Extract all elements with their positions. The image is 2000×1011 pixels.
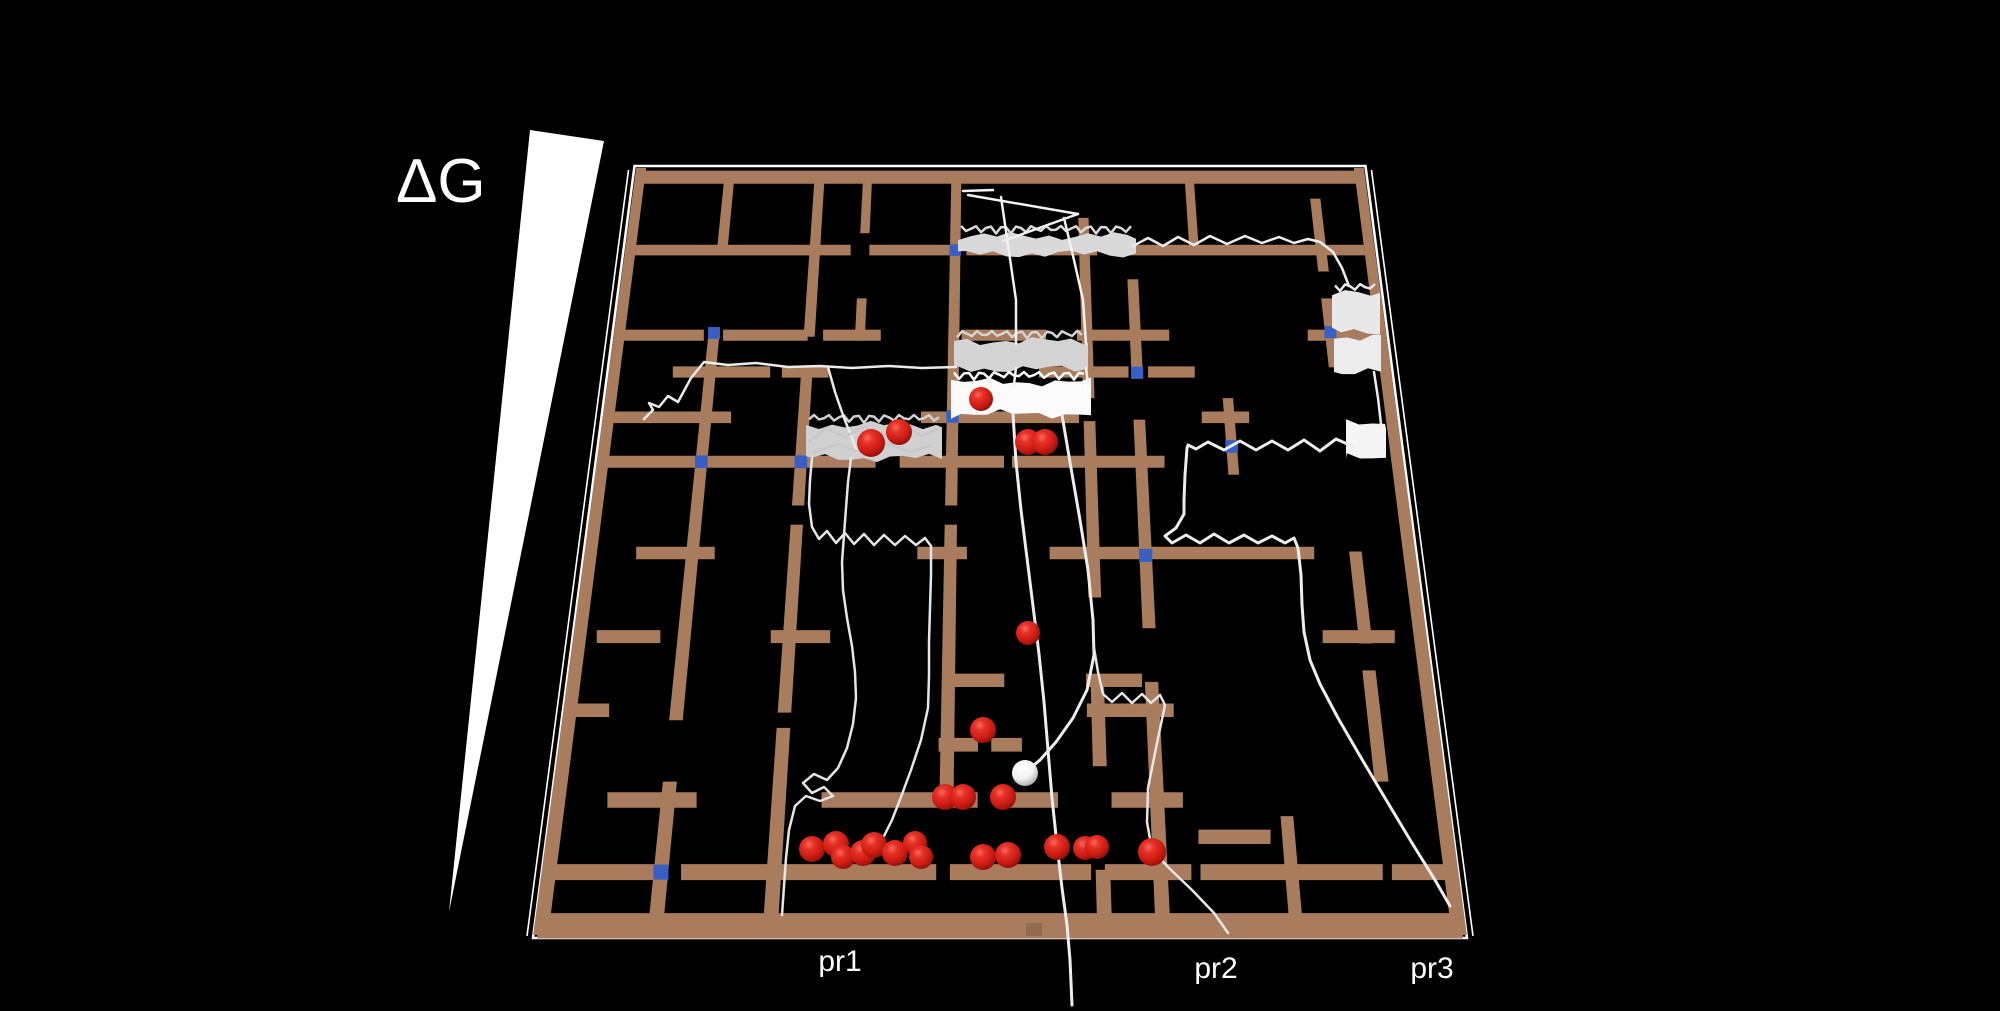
axis-label-pr1: pr1 <box>818 945 861 978</box>
energy-landscape-figure: ΔG pr1 pr2 pr3 <box>0 0 2000 1011</box>
axis-label-pr3: pr3 <box>1410 952 1453 985</box>
axis-label-pr2: pr2 <box>1194 952 1237 985</box>
free-energy-wedge <box>449 130 604 912</box>
energy-axis-label: ΔG <box>396 147 486 216</box>
figure-canvas: ΔG pr1 pr2 pr3 <box>0 0 2000 1011</box>
maze-grid <box>533 168 1467 938</box>
